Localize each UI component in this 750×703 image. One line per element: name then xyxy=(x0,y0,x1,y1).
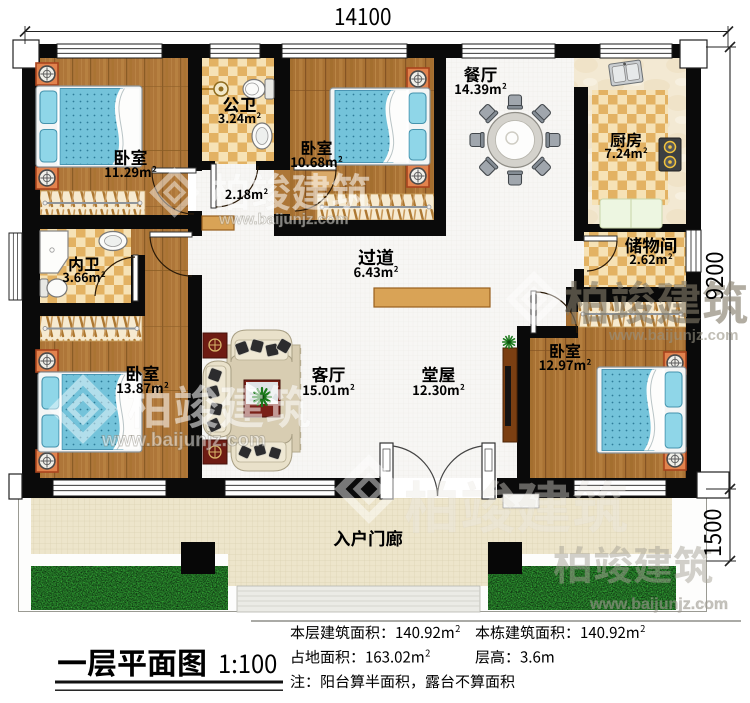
svg-text:www.baijunjz.com: www.baijunjz.com xyxy=(589,596,728,613)
svg-text:www.baijunjz.com: www.baijunjz.com xyxy=(218,211,348,228)
svg-text:www.baijunjz.com: www.baijunjz.com xyxy=(608,327,738,344)
svg-text:www.baijunjz.com: www.baijunjz.com xyxy=(101,430,266,451)
